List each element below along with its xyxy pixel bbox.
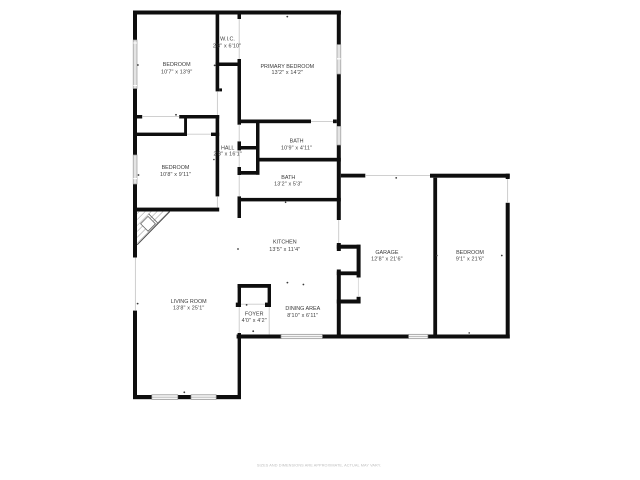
svg-text:10'8" x 9'11": 10'8" x 9'11" <box>160 172 191 178</box>
svg-text:13'5" x 11'4": 13'5" x 11'4" <box>269 247 300 253</box>
svg-text:9'1" x 21'6": 9'1" x 21'6" <box>456 257 484 263</box>
svg-text:LIVING ROOM: LIVING ROOM <box>171 299 207 305</box>
svg-text:KITCHEN: KITCHEN <box>273 240 297 246</box>
svg-text:BEDROOM: BEDROOM <box>162 165 190 171</box>
svg-text:GARAGE: GARAGE <box>375 250 398 256</box>
svg-text:13'2" x 5'3": 13'2" x 5'3" <box>274 182 302 188</box>
svg-text:13'2" x 14'2": 13'2" x 14'2" <box>272 70 304 76</box>
svg-text:BATH: BATH <box>290 138 304 144</box>
svg-text:4'0" x 4'2": 4'0" x 4'2" <box>242 318 267 324</box>
svg-text:13'8" x 25'1": 13'8" x 25'1" <box>173 306 205 312</box>
svg-text:2'8" x 6'10": 2'8" x 6'10" <box>213 43 241 49</box>
svg-text:DINING AREA: DINING AREA <box>285 306 320 312</box>
svg-text:BATH: BATH <box>281 175 295 181</box>
svg-text:8'10" x 6'11": 8'10" x 6'11" <box>287 313 318 319</box>
svg-text:BEDROOM: BEDROOM <box>456 250 484 256</box>
svg-text:12'8" x 21'6": 12'8" x 21'6" <box>371 257 403 263</box>
svg-text:W.I.C.: W.I.C. <box>220 36 235 42</box>
svg-text:FOYER: FOYER <box>245 311 264 317</box>
svg-text:HALL: HALL <box>221 145 235 151</box>
svg-text:SIZES AND DIMENSIONS ARE APPRO: SIZES AND DIMENSIONS ARE APPROXIMATE, AC… <box>257 464 381 468</box>
svg-text:PRIMARY BEDROOM: PRIMARY BEDROOM <box>260 64 314 70</box>
svg-text:10'9" x 4'11": 10'9" x 4'11" <box>281 145 312 151</box>
svg-text:10'7" x 13'9": 10'7" x 13'9" <box>161 69 193 75</box>
svg-text:BEDROOM: BEDROOM <box>163 62 191 68</box>
svg-text:2'8" x 16'1": 2'8" x 16'1" <box>214 151 242 157</box>
